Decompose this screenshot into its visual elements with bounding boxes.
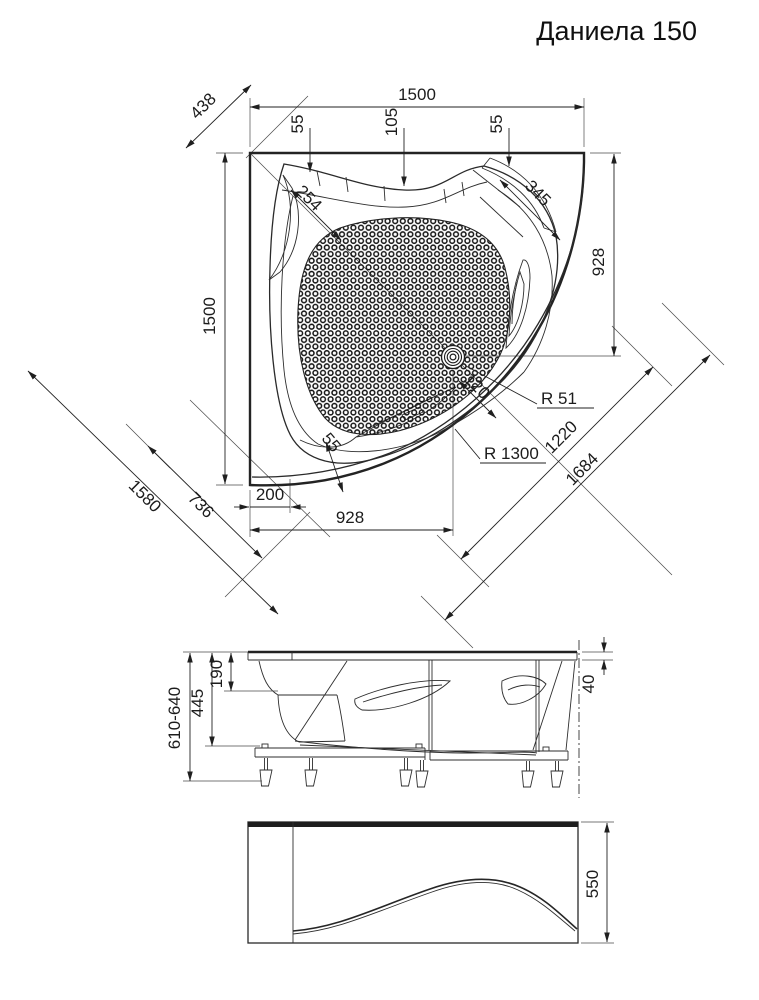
dim-rim-to-ledge: 190: [207, 660, 226, 688]
dim-top-width: 1500: [398, 85, 436, 104]
dim-corner-diag: 438: [186, 89, 219, 122]
drain: [442, 346, 465, 369]
dim-diag-1220: 1220: [541, 417, 581, 457]
dim-rim-height: 40: [579, 675, 598, 694]
dim-drain-from-top: 928: [589, 248, 608, 276]
drawing-title: Даниела 150: [536, 16, 697, 46]
dim-headrest-left: 254: [292, 181, 325, 214]
panel-top-edge: [248, 822, 578, 827]
headrest-left: [269, 175, 298, 280]
floor-antislip: [298, 218, 510, 435]
panel-outline: [248, 822, 578, 943]
technical-drawing: Даниела 150: [0, 0, 759, 1000]
rim-facets: [317, 171, 464, 203]
dim-height-adjustable: 610-640: [165, 687, 184, 749]
side-extension-lines: [183, 652, 613, 781]
top-view: 1500 438 55 105 55 254 345 1500 928 120 …: [28, 85, 724, 648]
side-view-dimensions: [190, 637, 604, 781]
side-view: 610-640 445 190 40: [165, 637, 613, 798]
front-view: 550: [248, 822, 614, 943]
dim-panel-height: 550: [583, 870, 602, 898]
dim-headrest-right: 345: [521, 176, 554, 209]
dim-drain-from-left: 928: [336, 508, 364, 527]
dim-rim-right: 55: [487, 115, 506, 134]
dim-front-radius: R 1300: [484, 444, 539, 463]
dim-rim-left: 55: [288, 115, 307, 134]
dim-corner-offset: 200: [256, 485, 284, 504]
dim-rim-bottom: 55: [318, 429, 345, 456]
adjustable-feet: [260, 758, 563, 787]
side-shell-profile: [259, 660, 575, 755]
dim-diag-736: 736: [184, 488, 217, 521]
dim-shell-height: 445: [188, 689, 207, 717]
dim-rim-center: 105: [382, 108, 401, 136]
dim-diag-1580: 1580: [125, 476, 165, 516]
panel-wave: [293, 879, 577, 934]
dim-left-height: 1500: [200, 297, 219, 335]
dim-drain-radius: R 51: [541, 389, 577, 408]
drawing-sheet: Даниела 150: [0, 0, 759, 1000]
